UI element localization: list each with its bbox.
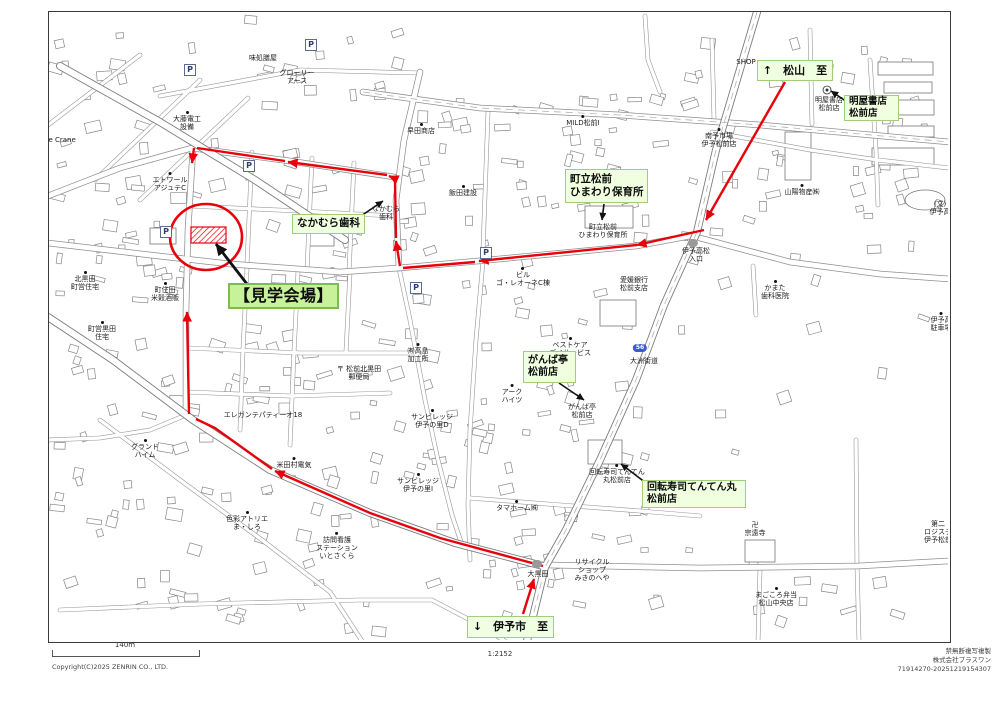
map-small-label: 伊予高駐車場: [931, 312, 949, 332]
poi-dot-icon: [511, 384, 514, 387]
map-small-label: グローリーアース: [280, 69, 315, 85]
map-small-label: 伊予高松入口: [682, 247, 710, 263]
label-ganbatei: がんば亭松前店: [523, 351, 576, 383]
label-haruya-shoten: 明屋書店松前店: [844, 95, 899, 121]
zenrin-copyright: Copyright(C)2025 ZENRIN CO., LTD.: [52, 663, 168, 671]
credit-line: 71914270-20251219154307: [700, 665, 991, 674]
map-small-label: 明屋書店松前店: [815, 96, 843, 112]
map-small-label: がんば亭松前店: [568, 403, 596, 419]
scale-bar: [52, 650, 200, 657]
print-credits: 禁無断複写複製 株式会社プラスワン 71914270-2025121915430…: [700, 647, 991, 673]
map-small-label: 第二ロジステ伊予松前: [924, 520, 948, 544]
poi-dot-icon: [144, 439, 147, 442]
map-small-label: 大黒田: [528, 570, 549, 578]
map-small-label: 大洲街道: [630, 357, 658, 365]
poi-dot-icon: [293, 457, 296, 460]
map-small-label: SHOP: [736, 58, 755, 66]
parking-icon: P: [184, 64, 196, 76]
poi-dot-icon: [420, 123, 423, 126]
poi-dot-icon: [940, 312, 943, 315]
label-to-iyoshi: ↓ 伊予市 至: [467, 616, 554, 638]
map-small-label: 町営黒田住宅: [88, 321, 116, 341]
map-small-label: サンビレッジ伊予の里I: [397, 473, 439, 493]
map-small-label: 南予市場伊予松前店: [702, 128, 737, 148]
poi-dot-icon: [417, 343, 420, 346]
map-small-label: ビルゴ・レオーネC棟: [496, 267, 550, 287]
parking-icon: P: [160, 226, 172, 238]
map-small-label: 町立松前ひまわり保育所: [579, 223, 628, 239]
poi-dot-icon: [774, 280, 777, 283]
poi-dot-icon: [718, 128, 721, 131]
map-small-label: なかむら歯科: [372, 205, 400, 221]
map-small-label: MILD松前Ⅰ: [566, 115, 599, 127]
route-shield-icon: 56: [633, 344, 647, 352]
label-nakamura: なかむら歯科: [292, 214, 365, 234]
map-small-label: エレガンテパティーオ18: [224, 411, 303, 419]
credit-line: 禁無断複写複製: [700, 647, 991, 656]
label-kengaku-kaijo: 【見学会場】: [228, 283, 339, 309]
poi-dot-icon: [515, 500, 518, 503]
map-small-label: タマホーム㈱: [496, 500, 538, 512]
map-small-label: nce Crane: [49, 136, 76, 144]
map-small-label: サンビレッジ伊予の里D: [411, 409, 453, 429]
map-small-label: エトワールアジュテC: [153, 172, 188, 192]
map-small-label: 訪問看護ステーションいとさくら: [316, 532, 358, 560]
map-small-label: まごころ弁当松山中央店: [755, 587, 797, 607]
poi-dot-icon: [616, 464, 619, 467]
credit-line: 株式会社プラスワン: [700, 656, 991, 665]
label-to-matsuyama: ↑ 松山 至: [757, 60, 833, 81]
intersection-icon: [532, 560, 542, 568]
poi-dot-icon: [84, 271, 87, 274]
map-small-label: 味処膳屋: [249, 54, 277, 62]
poi-dot-icon: [582, 115, 585, 118]
parking-icon: P: [305, 39, 317, 51]
poi-dot-icon: [164, 282, 167, 285]
poi-dot-icon: [569, 337, 572, 340]
poi-dot-icon: [186, 111, 189, 114]
map-small-label: 〒 松前北黒田郵便局: [337, 365, 381, 381]
map-small-label: 卍宗遠寺: [745, 521, 766, 537]
map-small-label: 大藤電工設備: [173, 111, 201, 131]
map-small-label: 米田村電気: [277, 457, 312, 469]
intersection-icon: [688, 239, 698, 247]
poi-dot-icon: [246, 511, 249, 514]
map-small-label: 北黒田町営住宅: [71, 271, 99, 291]
label-hoikusho: 町立松前ひまわり保育所: [565, 169, 648, 203]
map-small-label: アークハイツ: [502, 384, 523, 404]
map-label-layer: SHOP明屋書店松前店南予市場伊予松前店山陽物産㈱町立松前ひまわり保育所早田商店…: [49, 12, 948, 640]
parking-icon: P: [243, 160, 255, 172]
map-small-label: ㈲高島加工所: [408, 343, 429, 363]
label-tenten-maru: 回転寿司てんてん丸松前店: [642, 480, 746, 508]
poi-dot-icon: [431, 409, 434, 412]
parking-icon: P: [480, 247, 492, 259]
map-small-label: 色彩アトリエま・しろ: [226, 511, 268, 531]
poi-dot-icon: [801, 184, 804, 187]
map-small-label: 早田商店: [407, 123, 435, 135]
poi-dot-icon: [417, 473, 420, 476]
guide-map-page: SHOP明屋書店松前店南予市場伊予松前店山陽物産㈱町立松前ひまわり保育所早田商店…: [0, 0, 1000, 707]
poi-dot-icon: [521, 267, 524, 270]
poi-dot-icon: [101, 321, 104, 324]
map-small-label: 飯田建設: [449, 185, 477, 197]
map-small-label: 回転寿司てんてん丸松前店: [589, 464, 645, 484]
map-small-label: かまた歯科医院: [761, 280, 789, 300]
map-small-label: 町住田米穀酒販: [151, 282, 179, 302]
poi-dot-icon: [775, 587, 778, 590]
map-small-label: グランドハイム: [131, 439, 159, 459]
scale-bar-label: 140m: [52, 641, 198, 649]
map-small-label: 愛媛銀行松前支店: [620, 276, 648, 292]
map-small-label: 山陽物産㈱: [785, 184, 820, 196]
poi-dot-icon: [336, 532, 339, 535]
poi-dot-icon: [462, 185, 465, 188]
map-small-label: (文)伊予高: [930, 200, 949, 216]
poi-dot-icon: [169, 172, 172, 175]
map-ratio: 1:2152: [460, 650, 540, 658]
map-small-label: リサイクルショップみきのへや: [575, 558, 610, 582]
parking-icon: P: [410, 282, 422, 294]
